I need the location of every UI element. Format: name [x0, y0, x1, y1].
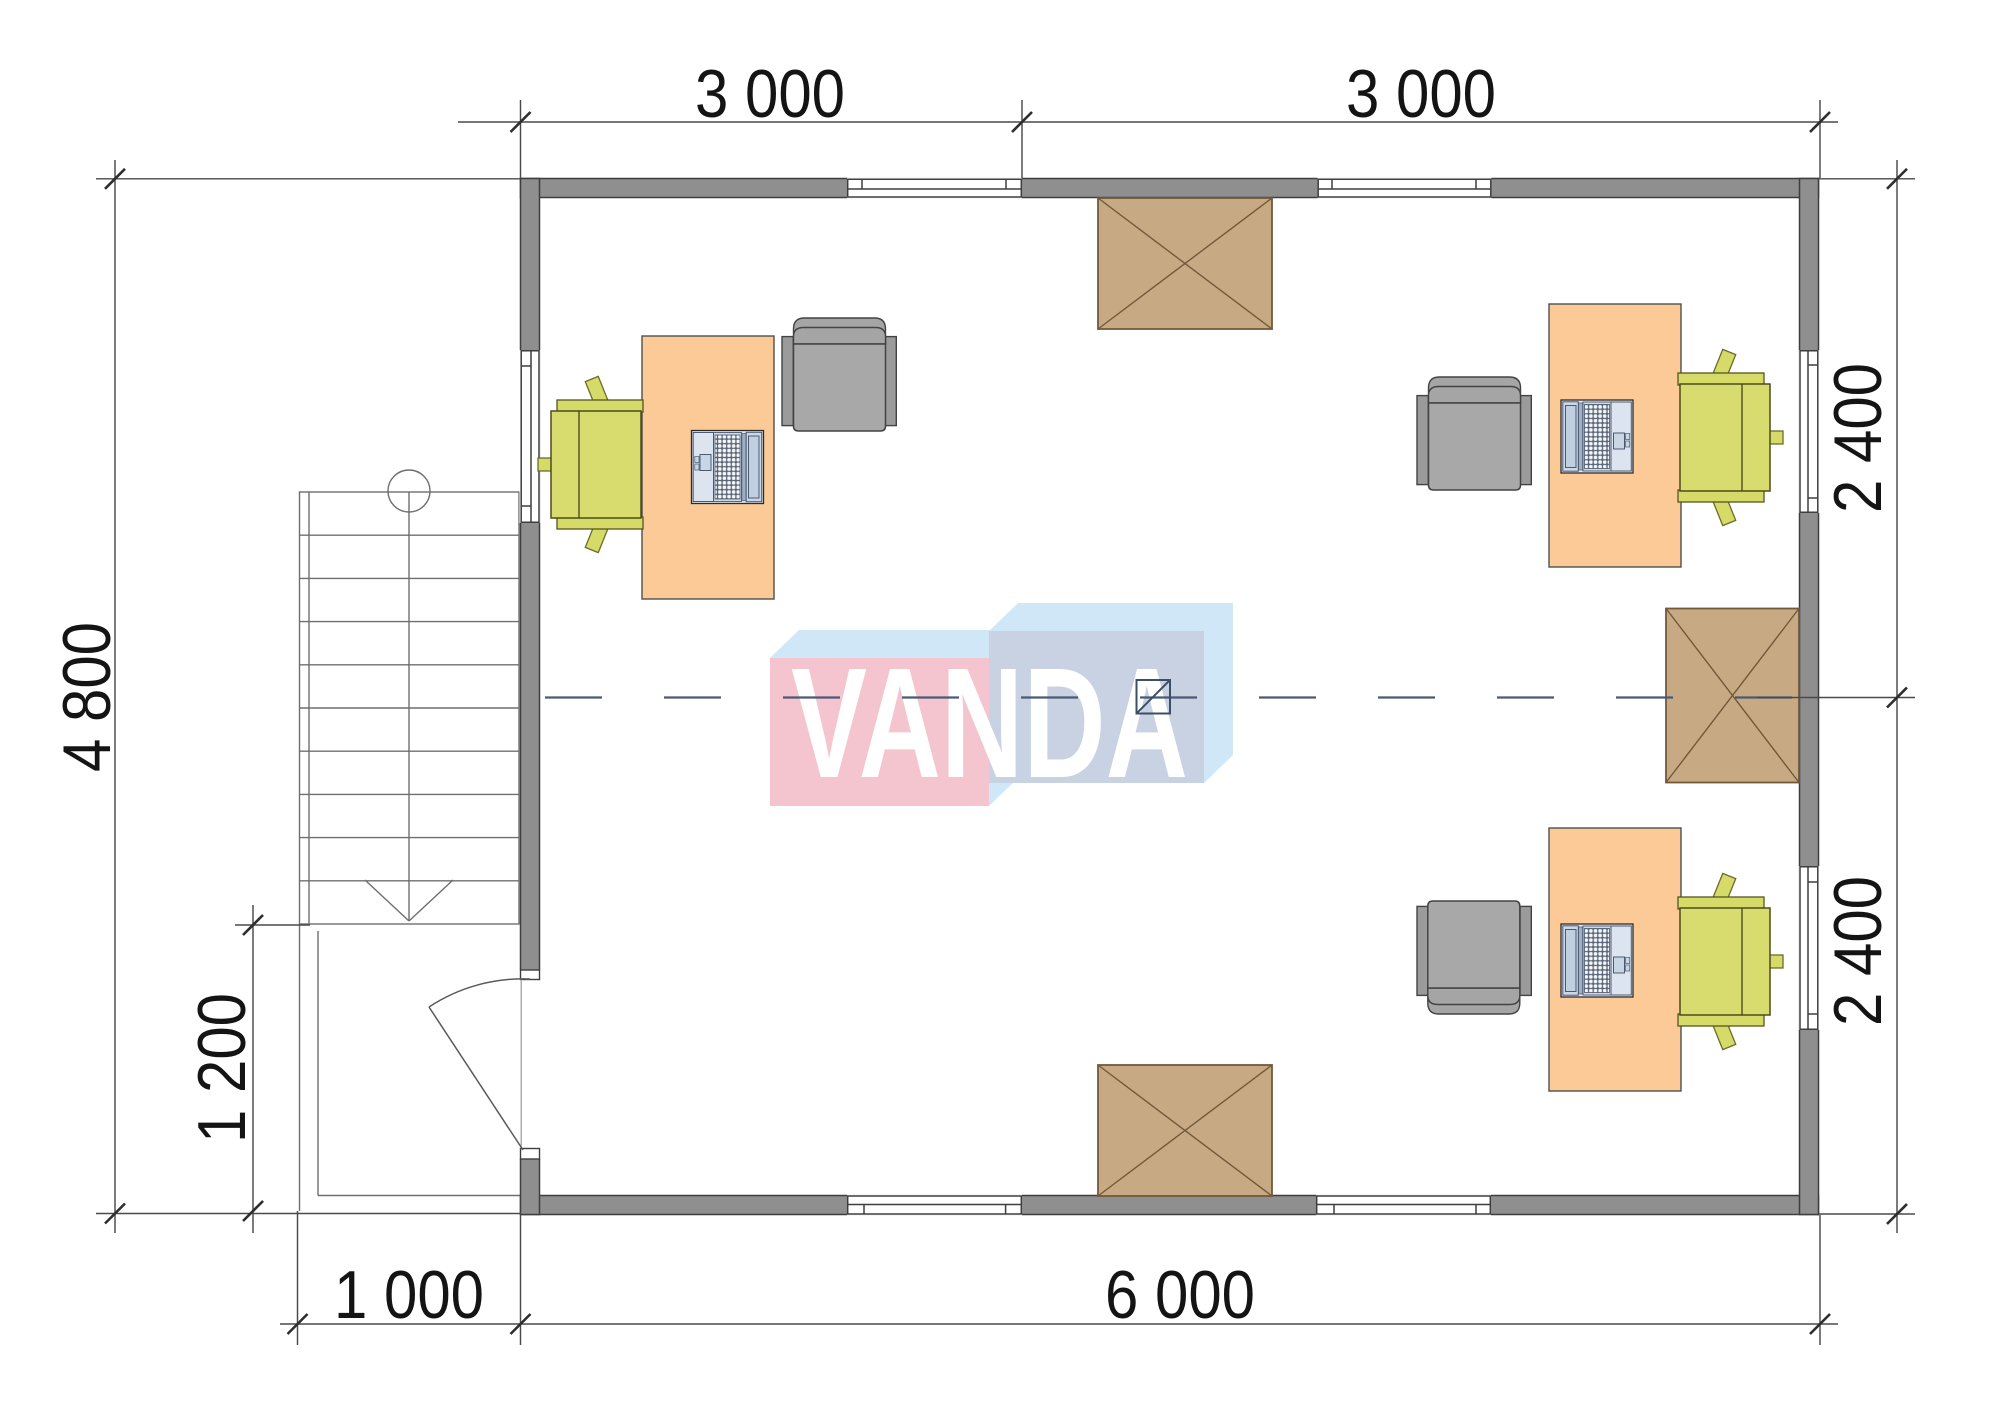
- svg-text:2 400: 2 400: [1820, 363, 1896, 513]
- svg-text:6 000: 6 000: [1105, 1257, 1255, 1333]
- svg-text:1 200: 1 200: [184, 993, 260, 1143]
- svg-text:3 000: 3 000: [695, 56, 845, 132]
- svg-text:2 400: 2 400: [1820, 876, 1896, 1026]
- svg-text:3 000: 3 000: [1346, 56, 1496, 132]
- svg-text:VANDA: VANDA: [791, 636, 1188, 811]
- svg-text:1 000: 1 000: [334, 1257, 484, 1333]
- svg-text:4 800: 4 800: [49, 622, 125, 772]
